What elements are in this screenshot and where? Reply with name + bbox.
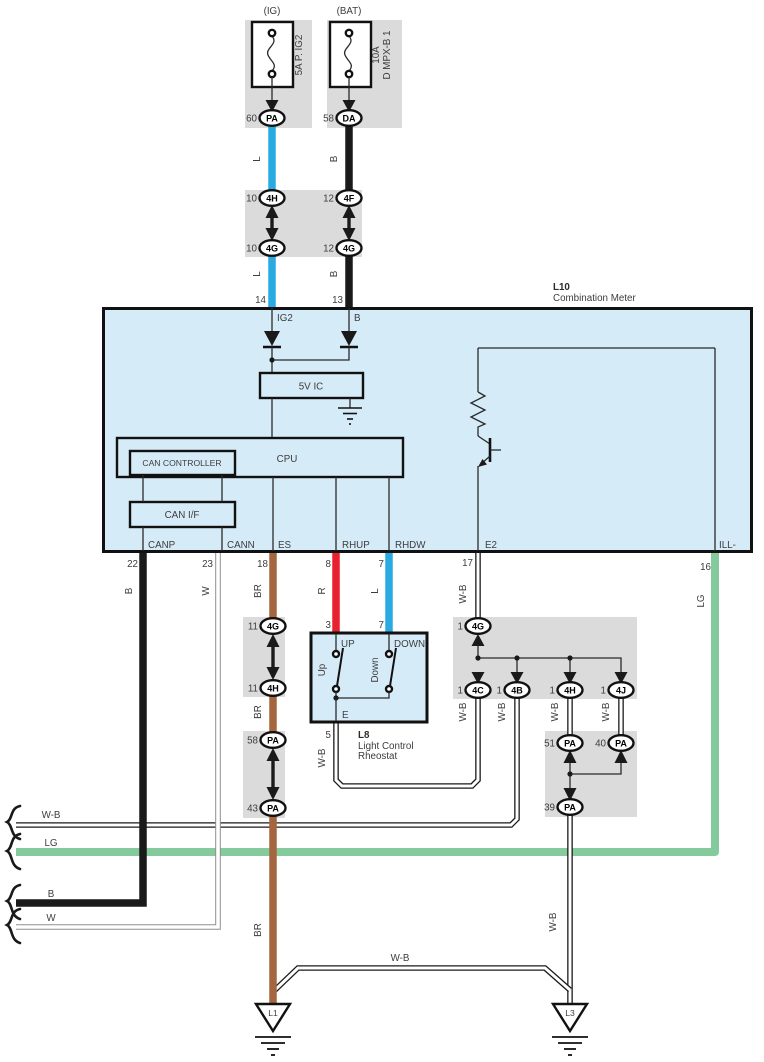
pin-number: 14: [255, 295, 266, 306]
pin-number: 1: [550, 686, 555, 697]
pin-number: 43: [247, 804, 258, 815]
pin-number: 60: [246, 114, 257, 125]
exit-wire-label: W-B: [42, 810, 61, 821]
pin-number: 39: [544, 803, 555, 814]
pin-name: B: [354, 313, 361, 324]
switch-contact: [333, 651, 339, 657]
switch-contact: [386, 651, 392, 657]
rheostat-name: Rheostat: [358, 751, 397, 762]
pin-number: 18: [257, 559, 268, 570]
pin-number: 1: [497, 686, 502, 697]
switch-label: Up: [317, 663, 328, 676]
connector-code: PA: [564, 803, 576, 813]
connector-code: PA: [615, 739, 627, 749]
pin-number: 10: [246, 244, 257, 255]
pin-number: 7: [379, 559, 384, 570]
connector-code: 4F: [344, 194, 355, 204]
exit-wire-label: LG: [44, 838, 57, 849]
wire-color: W-B: [458, 702, 469, 721]
wire-color: W-B: [497, 702, 508, 721]
pin-name: ES: [278, 540, 292, 551]
wire-color: W-B: [548, 912, 559, 931]
connector-code: 4G: [343, 244, 355, 254]
wire-color: W-B: [458, 584, 469, 603]
block-label: CAN I/F: [165, 510, 200, 521]
pin-number: 11: [248, 684, 258, 695]
terminal-label: DOWN: [394, 639, 425, 650]
switch-label: Down: [370, 657, 381, 682]
pin-number: 3: [326, 620, 332, 631]
fuse-bat-source: (BAT): [337, 6, 362, 17]
meter-code: L10: [553, 282, 570, 293]
connector-code: 4H: [266, 194, 278, 204]
wire-color: W-B: [550, 702, 561, 721]
connector-code: 4C: [472, 686, 484, 696]
pin-number: 11: [248, 622, 258, 633]
connector-code: 4G: [472, 622, 484, 632]
switch-contact: [386, 686, 392, 692]
combination-meter: [104, 308, 752, 552]
pin-number: 12: [323, 194, 334, 205]
connector-code: 4B: [511, 686, 523, 696]
pin-number: 13: [332, 295, 343, 306]
exit-wire-label: B: [48, 889, 55, 900]
pin-name: RHDW: [395, 540, 426, 551]
connector-code: 4G: [266, 244, 278, 254]
fuse-bat-label: D MPX-B 1: [382, 31, 393, 80]
fuse-ig-label: 5A P. IG2: [294, 35, 305, 76]
fuse-ig-terminal-top: [269, 30, 275, 36]
wire-color: BR: [253, 584, 264, 598]
fuse-bat-rating: 10A: [371, 46, 382, 64]
exit-wire-label: W: [46, 913, 56, 924]
pin-number: 12: [323, 244, 334, 255]
pin-number: 23: [202, 559, 213, 570]
fuse-ig-source: (IG): [264, 6, 281, 17]
ground-label: L1: [268, 1008, 278, 1018]
wire-color: B: [329, 270, 340, 277]
pin-number: 40: [595, 739, 606, 750]
pin-name: CANN: [227, 540, 255, 551]
ground-label: L3: [565, 1008, 575, 1018]
fuse-bat-terminal-bottom: [346, 71, 352, 77]
rheostat-code: L8: [358, 730, 370, 741]
pin-number: 16: [700, 562, 711, 573]
pin-name: ILL-: [719, 540, 736, 551]
connector-code: PA: [564, 739, 576, 749]
meter-name: Combination Meter: [553, 293, 637, 304]
wire-color: W: [201, 586, 212, 596]
wire-color: L: [252, 271, 263, 277]
switch-contact: [333, 686, 339, 692]
wire-color: LG: [696, 594, 707, 607]
pin-number: 58: [323, 114, 334, 125]
block-label: CAN CONTROLLER: [142, 458, 221, 468]
connector-code: PA: [267, 804, 279, 814]
terminal-label: UP: [341, 639, 355, 650]
pin-name: CANP: [148, 540, 176, 551]
connector-code: 4H: [267, 684, 279, 694]
pin-number: 5: [326, 730, 332, 741]
pin-number: 1: [458, 686, 463, 697]
pin-number: 22: [127, 559, 138, 570]
pin-number: 8: [326, 559, 332, 570]
connector-code: DA: [343, 114, 356, 124]
wire-color: W-B: [391, 953, 410, 964]
pin-number: 10: [246, 194, 257, 205]
wire-color: B: [124, 587, 135, 594]
connector-code: PA: [267, 736, 279, 746]
connector-code: PA: [266, 114, 278, 124]
wire-color: L: [370, 588, 381, 594]
pin-number: 51: [544, 739, 555, 750]
wiring-diagram: PA DA 4H 4F 4G 4G 4G 4H PA PA 4G 4C 4B 4…: [0, 0, 764, 1062]
connector-code: 4J: [616, 686, 626, 696]
block-label: CPU: [277, 454, 298, 465]
wire-color: BR: [253, 705, 264, 719]
fuse-ig-terminal-bottom: [269, 71, 275, 77]
pin-number: 7: [379, 620, 384, 631]
wire-color: B: [329, 155, 340, 162]
wire-color: W-B: [601, 702, 612, 721]
pin-number: 1: [458, 622, 463, 633]
fuse-bat-terminal-top: [346, 30, 352, 36]
wire-color: L: [252, 156, 263, 162]
block-label: 5V IC: [299, 382, 324, 393]
wire-color: BR: [253, 923, 264, 937]
pin-number: 58: [247, 736, 258, 747]
connector-code: 4G: [267, 622, 279, 632]
pin-name: E2: [485, 540, 497, 551]
pin-number: 1: [601, 686, 606, 697]
pin-number: 17: [462, 558, 473, 569]
pin-name: IG2: [277, 313, 293, 324]
terminal-label: E: [342, 710, 349, 721]
pin-name: RHUP: [342, 540, 370, 551]
wire-color: W-B: [317, 748, 328, 767]
wire-color: R: [317, 587, 328, 594]
connector-code: 4H: [564, 686, 576, 696]
